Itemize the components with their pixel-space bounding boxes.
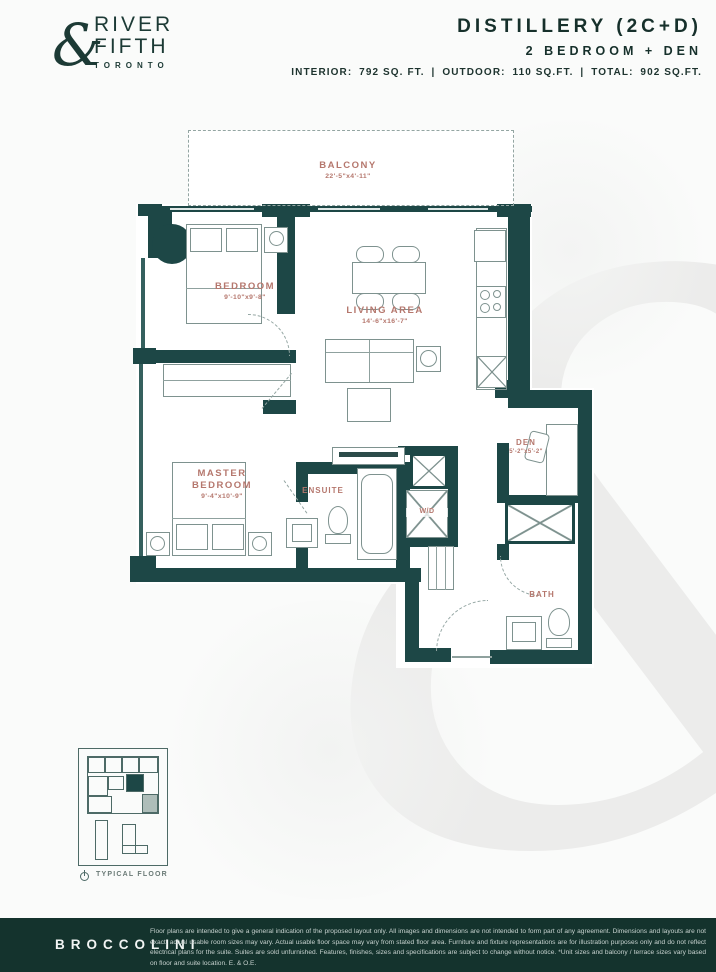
- living-area-label: LIVING AREA 14'-6"x16'-7": [325, 305, 445, 326]
- burner: [480, 290, 490, 300]
- toilet: [328, 506, 348, 534]
- room-dims: 9'-10"x9'-8": [190, 294, 300, 302]
- wall-segment: [508, 206, 530, 392]
- sink-basin: [512, 622, 536, 642]
- dining-chair: [356, 246, 384, 263]
- keyplan-unit-shaded: [142, 794, 158, 813]
- keyplan-amenity: [95, 820, 108, 860]
- outdoor-label: OUTDOOR:: [442, 67, 505, 78]
- brand-name-top: RIVER: [94, 14, 173, 36]
- toilet-tank: [546, 638, 572, 648]
- entry-threshold: [452, 656, 492, 658]
- keyplan-core: [108, 776, 124, 790]
- wall-segment: [578, 402, 592, 502]
- room-name: BALCONY: [285, 160, 411, 172]
- room-name: MASTER BEDROOM: [178, 468, 266, 492]
- interior-label: INTERIOR:: [291, 67, 352, 78]
- keyplan-unit: [88, 776, 108, 796]
- linen-closet: [410, 453, 448, 489]
- unit-type: 2 BEDROOM + DEN: [288, 44, 702, 58]
- wall-segment: [405, 568, 419, 660]
- divider: |: [580, 67, 584, 78]
- closet-slider-line: [163, 380, 291, 381]
- unit-header: DISTILLERY (2C+D) 2 BEDROOM + DEN INTERI…: [288, 16, 702, 78]
- sofa-cushion-line: [369, 340, 370, 382]
- wall-segment: [133, 568, 421, 582]
- keyplan-unit: [88, 757, 105, 773]
- master-bedroom-label: MASTER BEDROOM 9'-4"x10'-9": [178, 468, 266, 501]
- dining-chair: [392, 246, 420, 263]
- lamp: [252, 536, 267, 551]
- keyplan-unit: [139, 757, 158, 773]
- unit-name: DISTILLERY (2C+D): [288, 16, 702, 38]
- keyplan-unit: [88, 796, 112, 813]
- footer-bar: BROCCOLINI Floor plans are intended to g…: [0, 918, 716, 972]
- dining-table: [352, 262, 426, 294]
- room-dims: 5'-2"x5'-2": [498, 449, 554, 457]
- brand-name-bottom: FIFTH: [94, 36, 173, 58]
- keyplan-amenity: [122, 845, 148, 854]
- room-name: LIVING AREA: [325, 305, 445, 317]
- outdoor-value: 110 SQ.FT.: [512, 67, 573, 78]
- pillow: [176, 524, 208, 550]
- keyplan-unit: [122, 757, 139, 773]
- wd-label: W/D: [406, 508, 448, 517]
- sofa-back-line: [326, 352, 413, 353]
- window: [170, 208, 254, 210]
- pillow: [190, 228, 222, 252]
- plant: [420, 350, 437, 367]
- lamp: [150, 536, 165, 551]
- disclaimer-text: Floor plans are intended to give a gener…: [150, 927, 706, 969]
- pillow: [212, 524, 244, 550]
- keyplan-unit-highlighted: [126, 774, 144, 792]
- bath-label: BATH: [512, 590, 572, 600]
- desk: [546, 424, 578, 496]
- closet-shelf-line: [445, 546, 446, 590]
- wall-segment: [490, 650, 592, 664]
- kitchen-sink: [477, 356, 507, 388]
- room-dims: 14'-6"x16'-7": [325, 318, 445, 326]
- window-wall: [139, 364, 143, 570]
- tv: [339, 452, 398, 457]
- wall-segment: [578, 502, 592, 662]
- window-wall: [141, 258, 145, 350]
- ensuite-label: ENSUITE: [290, 486, 356, 496]
- window: [318, 208, 380, 210]
- balcony-label: BALCONY 22'-5"x4'-11": [285, 160, 411, 181]
- toilet-tank: [325, 534, 351, 544]
- bedroom-label: BEDROOM 9'-10"x9'-8": [190, 281, 300, 302]
- floorplan-flyer-page: & & RIVER FIFTH TORONTO DISTILLERY (2C+D…: [0, 0, 716, 972]
- interior-value: 792 SQ. FT.: [359, 67, 424, 78]
- den-label: DEN 5'-2"x5'-2": [498, 438, 554, 457]
- coffee-table: [347, 388, 391, 422]
- sink-basin: [292, 524, 312, 542]
- burner: [493, 303, 501, 311]
- brand-city: TORONTO: [94, 61, 173, 70]
- burner: [493, 290, 501, 298]
- compass-needle: [84, 870, 85, 876]
- window: [428, 208, 488, 210]
- room-name: DEN: [498, 438, 554, 448]
- unit-areas: INTERIOR: 792 SQ. FT. | OUTDOOR: 110 SQ.…: [288, 67, 702, 78]
- hall-closet: [428, 546, 454, 590]
- toilet: [548, 608, 570, 636]
- room-dims: 9'-4"x10'-9": [178, 493, 266, 501]
- lamp: [269, 231, 284, 246]
- blanket-line: [172, 518, 246, 519]
- room-name: BATH: [512, 590, 572, 600]
- room-dims: 22'-5"x4'-11": [285, 173, 411, 181]
- keyplan-label: TYPICAL FLOOR: [96, 871, 168, 878]
- pillow: [226, 228, 258, 252]
- wall-segment: [448, 446, 458, 546]
- room-name: W/D: [406, 508, 448, 517]
- brand-logo: RIVER FIFTH TORONTO: [94, 14, 173, 70]
- total-value: 902 SQ.FT.: [640, 67, 702, 78]
- burner: [480, 303, 490, 313]
- room-name: ENSUITE: [290, 486, 356, 496]
- bathtub-inner: [361, 474, 393, 554]
- room-name: BEDROOM: [190, 281, 300, 293]
- keyplan-unit: [105, 757, 122, 773]
- fridge: [474, 230, 506, 262]
- shower: [505, 502, 575, 544]
- closet-shelf-line: [436, 546, 437, 590]
- total-label: TOTAL:: [591, 67, 633, 78]
- divider: |: [432, 67, 436, 78]
